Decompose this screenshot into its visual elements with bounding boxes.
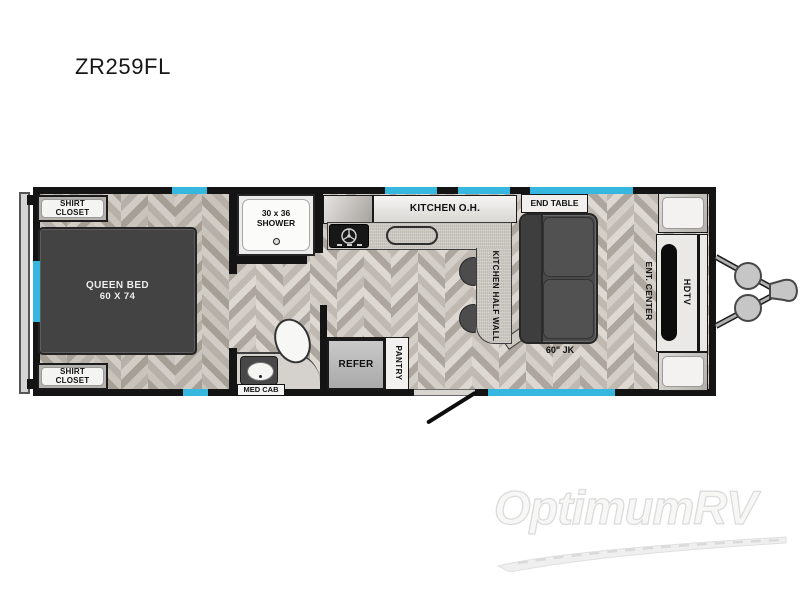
window [458, 187, 510, 194]
hdtv-screen [661, 244, 677, 341]
kitchen-half-wall-label: KITCHEN HALF WALL [491, 236, 500, 356]
queen-bed: QUEEN BED 60 X 74 [38, 227, 197, 355]
trailer-hitch [706, 240, 800, 350]
sofa-label-wrap: 60" JK [530, 345, 590, 355]
refer-label: REFER [339, 359, 374, 370]
refrigerator: REFER [327, 337, 385, 390]
propane-tank [735, 263, 761, 289]
window [385, 187, 437, 194]
hdtv-label: HDTV [682, 267, 692, 317]
window [33, 261, 40, 322]
rv-floorplan-page: ZR259FL SHIRT CLOSET SHIRT CLOSET QUEEN … [0, 0, 800, 600]
stove-knob [357, 244, 362, 246]
hitch-coupler [770, 280, 797, 301]
shirt-closet-label-line2: CLOSET [42, 377, 103, 386]
ent-center-label-wrap: ENT. CENTER [642, 254, 654, 328]
med-cab-label-box: MED CAB [237, 384, 285, 396]
cabinet-panel [662, 356, 704, 387]
hdtv-label-wrap: HDTV [680, 267, 692, 317]
shower-label-line1: 30 x 36 [262, 208, 290, 218]
sofa-cushion [543, 217, 594, 277]
stove-knob [337, 244, 342, 246]
sofa-backrest [521, 215, 543, 342]
pantry-label: PANTRY [394, 338, 403, 388]
shower-label: 30 x 36 SHOWER [243, 209, 309, 228]
sofa-cushion [543, 279, 594, 339]
watermark: OptimumRV [494, 484, 796, 577]
sink-drain-icon [259, 375, 262, 378]
queen-bed-label-line1: QUEEN BED [40, 280, 195, 291]
closet-panel: SHIRT CLOSET [41, 367, 104, 386]
pantry-label-wrap: PANTRY [391, 338, 403, 388]
shirt-closet-label-line2: CLOSET [42, 209, 103, 218]
stove-knob [347, 244, 352, 246]
watermark-road-icon [494, 532, 794, 572]
kitchen-oh-label: KITCHEN O.H. [374, 196, 516, 221]
kitchen-half-wall-label-wrap: KITCHEN HALF WALL [488, 236, 500, 356]
ent-center-label: ENT. CENTER [644, 254, 654, 328]
med-cab-sink [240, 356, 278, 385]
shirt-closet-bottom: SHIRT CLOSET [37, 363, 108, 390]
jackknife-sofa [519, 213, 598, 344]
end-table: END TABLE [521, 194, 588, 213]
kitchen-sink [386, 226, 438, 245]
model-title: ZR259FL [75, 54, 171, 80]
sofa-label: 60" JK [530, 345, 590, 355]
cabinet-edge [697, 235, 700, 351]
stove-burner-icon [340, 227, 358, 245]
shirt-closet-top: SHIRT CLOSET [37, 195, 108, 222]
kitchen-cabinet [323, 195, 373, 224]
med-cab-label: MED CAB [238, 385, 284, 394]
cooktop [329, 224, 369, 248]
window [172, 187, 207, 194]
shower-label-line2: SHOWER [257, 218, 295, 228]
closet-panel: SHIRT CLOSET [41, 199, 104, 218]
front-corner-cabinet-top [658, 193, 708, 233]
bathroom-sink-bowl [247, 362, 274, 381]
queen-bed-label-line2: 60 X 74 [40, 291, 195, 302]
window [530, 187, 633, 194]
front-corner-cabinet-bottom [658, 352, 708, 391]
propane-tank [735, 295, 761, 321]
end-table-label: END TABLE [522, 195, 587, 211]
watermark-brand: OptimumRV [494, 484, 796, 532]
cabinet-panel [662, 197, 704, 229]
rear-bumper [19, 192, 30, 394]
kitchen-overhead-cabinet: KITCHEN O.H. [373, 195, 517, 223]
shower-drain-icon [273, 238, 280, 245]
window [183, 389, 208, 396]
window [488, 389, 615, 396]
shower: 30 x 36 SHOWER [237, 194, 315, 256]
shower-pan: 30 x 36 SHOWER [242, 199, 310, 251]
